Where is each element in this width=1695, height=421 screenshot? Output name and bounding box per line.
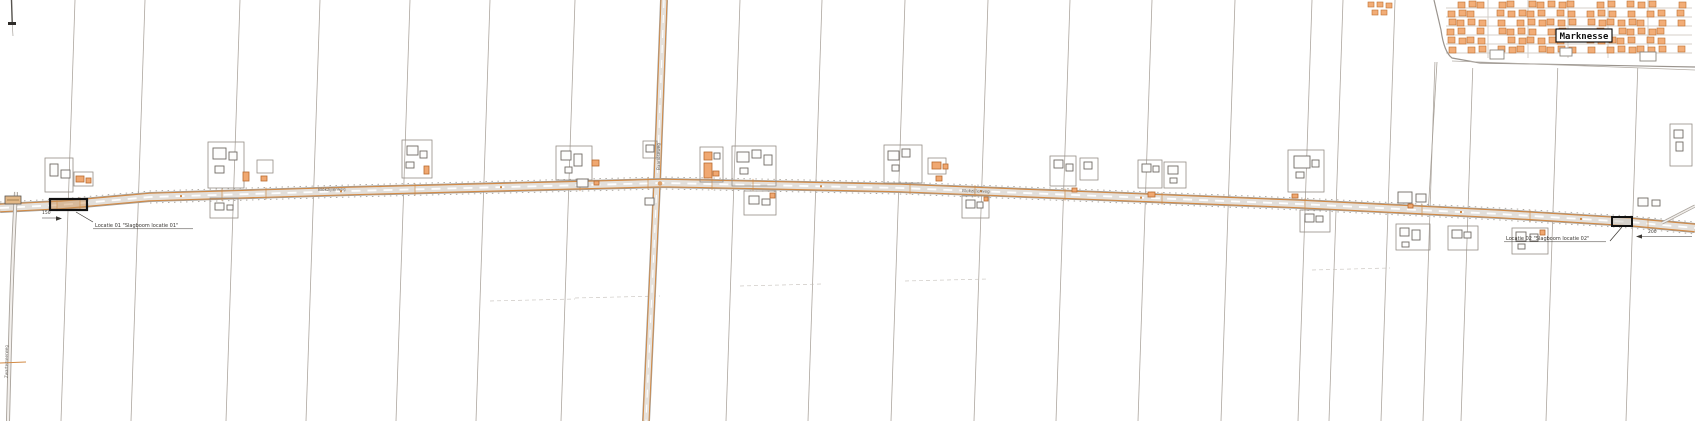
roadside-sign <box>5 196 21 204</box>
slagboom-marker-2 <box>1612 217 1632 226</box>
map-svg: Locatie 01 "Slagboom locatie 01" 150 Loc… <box>0 0 1695 421</box>
barrier-annotation-1-text: Locatie 01 "Slagboom locatie 01" <box>95 223 178 229</box>
road-name-cross: Baarloseweg <box>656 143 661 170</box>
road-name-left: Zwartemeerweg <box>4 345 9 378</box>
road-name-main-2: Blokzijlerweg <box>962 188 990 194</box>
map-viewport[interactable]: Locatie 01 "Slagboom locatie 01" 150 Loc… <box>0 0 1695 421</box>
slagboom-marker-1 <box>50 199 87 210</box>
distance-200-text: 200 <box>1648 229 1657 235</box>
road-name-main-1: Blokzijlerweg <box>318 187 346 192</box>
barrier-annotation-2-text: Locatie 02 "Slagboom locatie 02" <box>1506 236 1589 242</box>
distance-150-text: 150 <box>42 210 51 216</box>
town-label-text: Marknesse <box>1560 32 1609 42</box>
town-label: Marknesse <box>1556 29 1612 42</box>
